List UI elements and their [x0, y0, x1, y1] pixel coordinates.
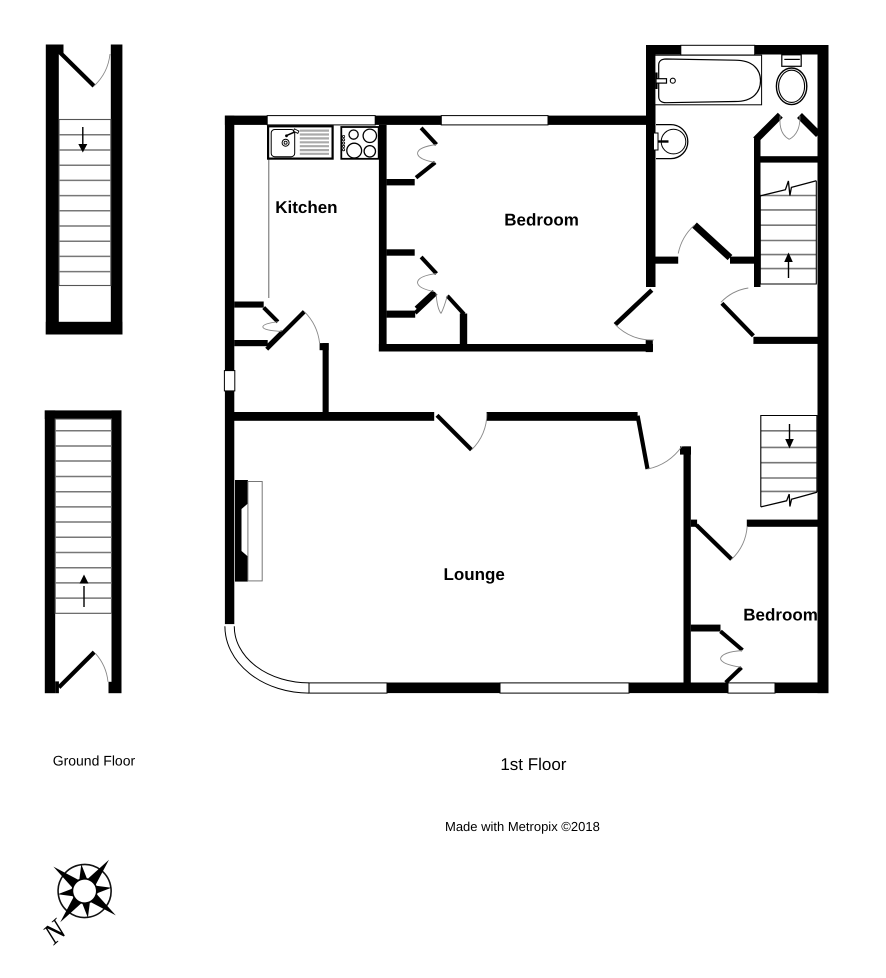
svg-text:Lounge: Lounge [444, 565, 505, 584]
svg-text:Bedroom: Bedroom [504, 210, 579, 229]
svg-text:Bedroom: Bedroom [743, 605, 818, 624]
svg-text:1st Floor: 1st Floor [500, 755, 566, 774]
svg-text:Kitchen: Kitchen [275, 198, 337, 217]
svg-text:Ground Floor: Ground Floor [53, 752, 136, 768]
svg-text:Made with Metropix ©2018: Made with Metropix ©2018 [445, 819, 600, 834]
